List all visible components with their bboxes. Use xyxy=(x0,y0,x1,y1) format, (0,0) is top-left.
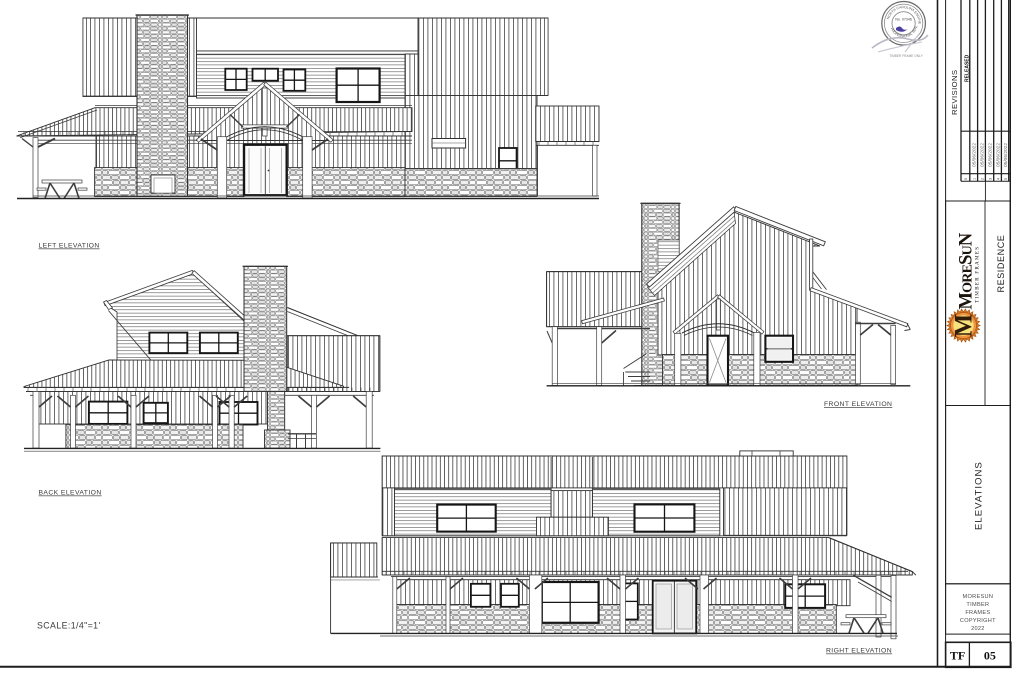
svg-text:ELEVATIONS: ELEVATIONS xyxy=(974,461,985,530)
svg-text:4: 4 xyxy=(996,178,1000,180)
svg-text:3: 3 xyxy=(988,178,992,180)
svg-text:M: M xyxy=(951,314,978,338)
svg-text:5: 5 xyxy=(1004,178,1008,180)
svg-text:LEFT ELEVATION: LEFT ELEVATION xyxy=(39,243,100,250)
svg-text:TIMBER: TIMBER xyxy=(966,602,989,608)
svg-text:1: 1 xyxy=(973,178,977,180)
svg-text:TIMBER FRAME ONLY: TIMBER FRAME ONLY xyxy=(889,54,923,58)
svg-text:05/06/2022: 05/06/2022 xyxy=(979,143,985,167)
svg-text:05: 05 xyxy=(984,649,996,663)
svg-text:RIGHT ELEVATION: RIGHT ELEVATION xyxy=(826,648,892,655)
svg-text:RESIDENCE: RESIDENCE xyxy=(996,235,1006,293)
svg-text:RELEASED: RELEASED xyxy=(964,54,970,82)
svg-text:05/06/2022: 05/06/2022 xyxy=(995,143,1001,167)
svg-text:05/06/2022: 05/06/2022 xyxy=(972,143,978,167)
svg-text:REVISIONS: REVISIONS xyxy=(950,70,959,115)
svg-text:No. 07346: No. 07346 xyxy=(895,18,912,22)
svg-text:MORESUN: MORESUN xyxy=(963,594,994,600)
svg-text:COPYRIGHT: COPYRIGHT xyxy=(960,618,996,624)
svg-text:SCALE:1/4"=1': SCALE:1/4"=1' xyxy=(37,621,101,631)
svg-text:05/06/2022: 05/06/2022 xyxy=(987,143,993,167)
svg-text:2022: 2022 xyxy=(971,626,985,632)
svg-text:TIMBER FRAMES: TIMBER FRAMES xyxy=(975,246,981,303)
svg-text:TF: TF xyxy=(950,649,965,663)
svg-text:2: 2 xyxy=(980,178,984,180)
svg-text:05/06/2022: 05/06/2022 xyxy=(1003,143,1009,167)
svg-text:FRONT ELEVATION: FRONT ELEVATION xyxy=(824,401,892,408)
svg-text:FRAMES: FRAMES xyxy=(965,610,990,616)
svg-text:BACK ELEVATION: BACK ELEVATION xyxy=(39,490,102,497)
svg-text:0: 0 xyxy=(964,178,968,180)
